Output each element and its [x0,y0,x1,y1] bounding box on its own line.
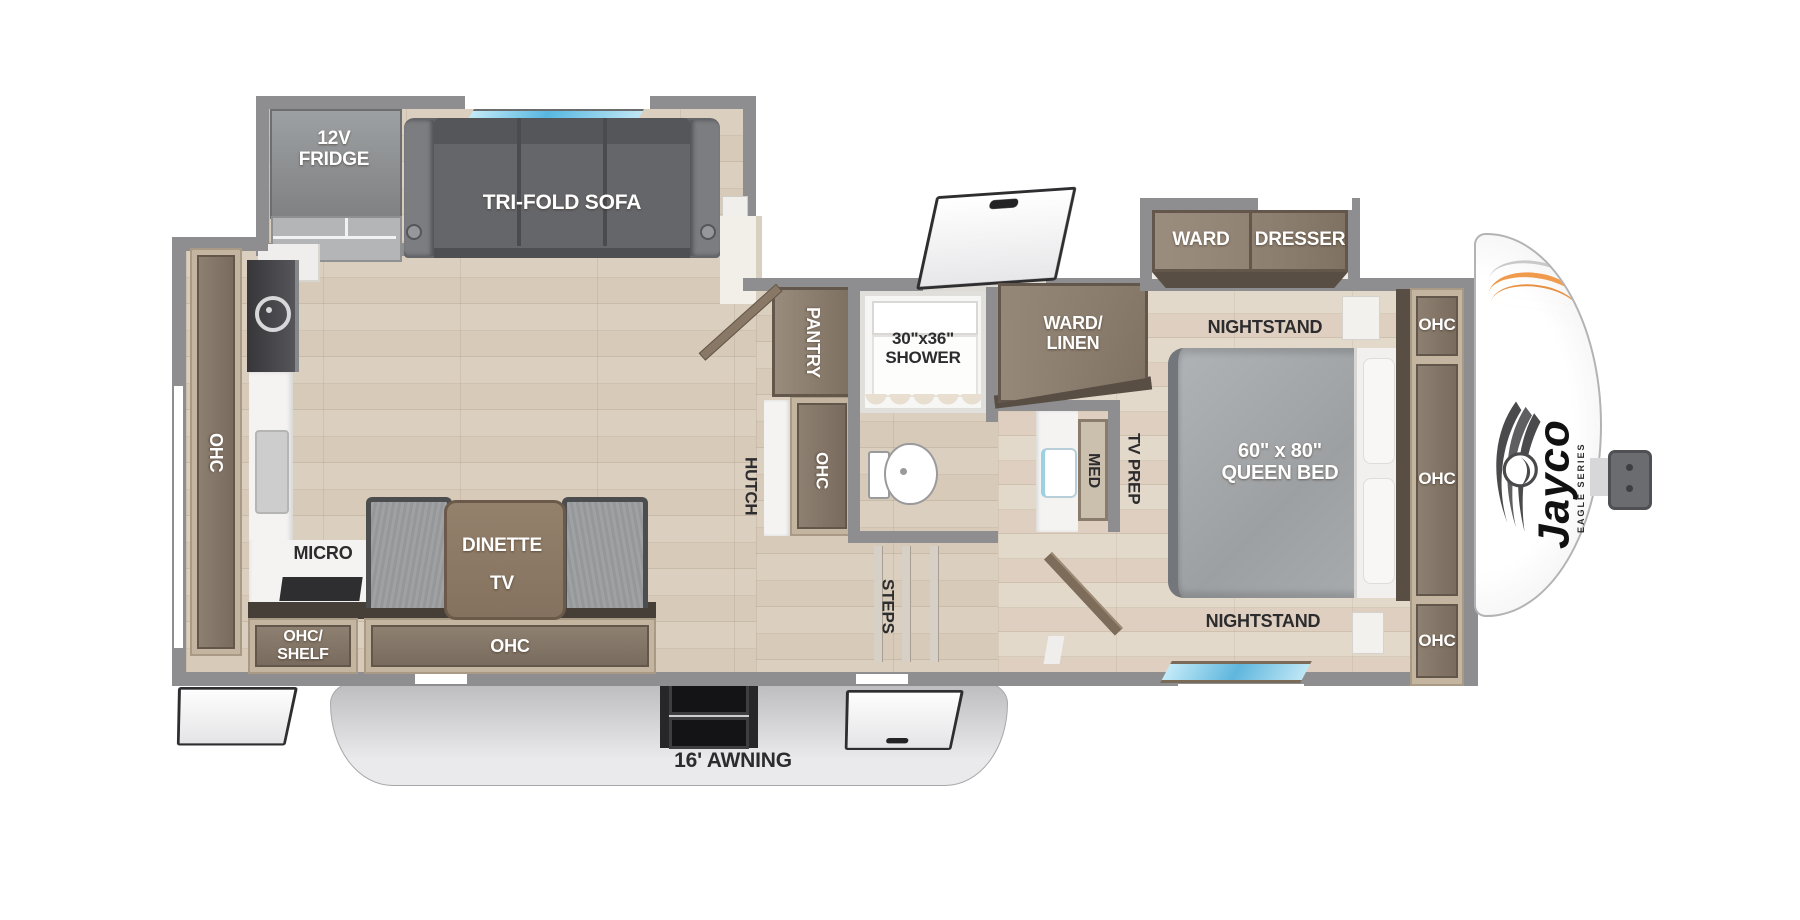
sofa-handle [700,224,716,240]
step-tread [669,683,749,715]
queen-bed-label: 60" x 80" QUEEN BED [1190,438,1370,486]
brand-series: EAGLE SERIES [1574,428,1588,548]
vanity-sink [1041,448,1077,498]
pillow [1363,478,1395,584]
sofa-seam [517,118,521,246]
slideout-window [465,96,650,109]
compartment-door-left [177,687,298,746]
bedroom-window [1160,661,1312,683]
med-label: MED [1081,434,1105,506]
ward-dresser-base [1152,272,1348,288]
drawer-divider [345,218,348,236]
shower-curtain [864,394,982,411]
tv-prep-label: TV PREP [1122,404,1146,534]
microwave [279,577,362,601]
cap-marker-light [1522,238,1532,244]
brand-name: Jayco [1532,398,1576,570]
ohc-right-top-label: OHC [1410,314,1464,336]
window-bottom-wall [415,674,467,684]
nightstand-top-label: NIGHTSTAND [1170,316,1360,338]
sofa-seam [603,118,607,246]
bedroom-slide-window [1258,198,1352,210]
ohc-lower-label: OHC [364,622,656,670]
dinette-table [444,500,566,620]
pantry-label: PANTRY [792,296,834,388]
kingpin-bolt [1626,485,1633,492]
ward-label: WARD [1152,228,1250,252]
floorplan: 16' AWNING 12V FRIDGE TRI-FOLD SOFA [0,0,1800,920]
ward-linen-label: WARD/ LINEN [998,310,1148,356]
window-bottom-wall [856,674,908,684]
awning-label: 16' AWNING [653,748,813,774]
toilet-bowl [884,443,938,505]
door-handle [989,198,1019,209]
ohc-shelf-label: OHC/ SHELF [252,622,354,670]
dresser-label: DRESSER [1252,228,1348,252]
ohc-right-mid-label: OHC [1410,468,1464,490]
tri-fold-sofa [404,118,720,258]
toilet-flush [900,468,907,475]
hutch-label: HUTCH [738,436,764,536]
burner-center [266,307,272,313]
step-tread [669,717,749,749]
ohc-right-bottom-label: OHC [1410,630,1464,652]
dinette-label: DINETTE [444,534,560,558]
dinette-bench-left [366,497,452,608]
wall-bath-bottom [848,531,998,543]
sofa-label: TRI-FOLD SOFA [434,190,690,216]
sofa-handle [406,224,422,240]
cap-marker-light [1542,239,1552,245]
hutch-ohc-label: OHC [800,436,844,506]
kingpin-hitch [1608,450,1652,510]
burner [255,296,291,332]
tv-prep-wall [1108,400,1120,532]
dinette-bench-right [562,497,648,608]
window-left-wall [174,386,183,648]
fridge-label: 12V FRIDGE [270,124,398,174]
micro-label: MICRO [278,542,368,564]
compartment-handle [886,738,909,743]
kitchen-sink [255,430,289,514]
range-cooktop [247,260,299,372]
drawer-divider [273,236,396,239]
bedroom-window-outer [1178,684,1304,692]
nightstand-bottom-label: NIGHTSTAND [1168,610,1358,632]
step-edge [930,546,938,662]
entry-door [916,187,1077,290]
sofa-back [434,118,690,144]
steps-label: STEPS [876,556,900,656]
compartment-door-center [845,690,964,750]
shower-label: 30"x36" SHOWER [860,326,986,370]
kingpin-bolt [1626,464,1633,471]
toilet [868,443,938,503]
kitchen-ohc-label: OHC [198,418,234,488]
sofa-base [434,248,690,258]
hutch-counter [764,400,790,536]
wall-bath-left [848,287,860,543]
dinette-tv-label: TV [444,572,560,596]
step-edge [902,546,910,662]
